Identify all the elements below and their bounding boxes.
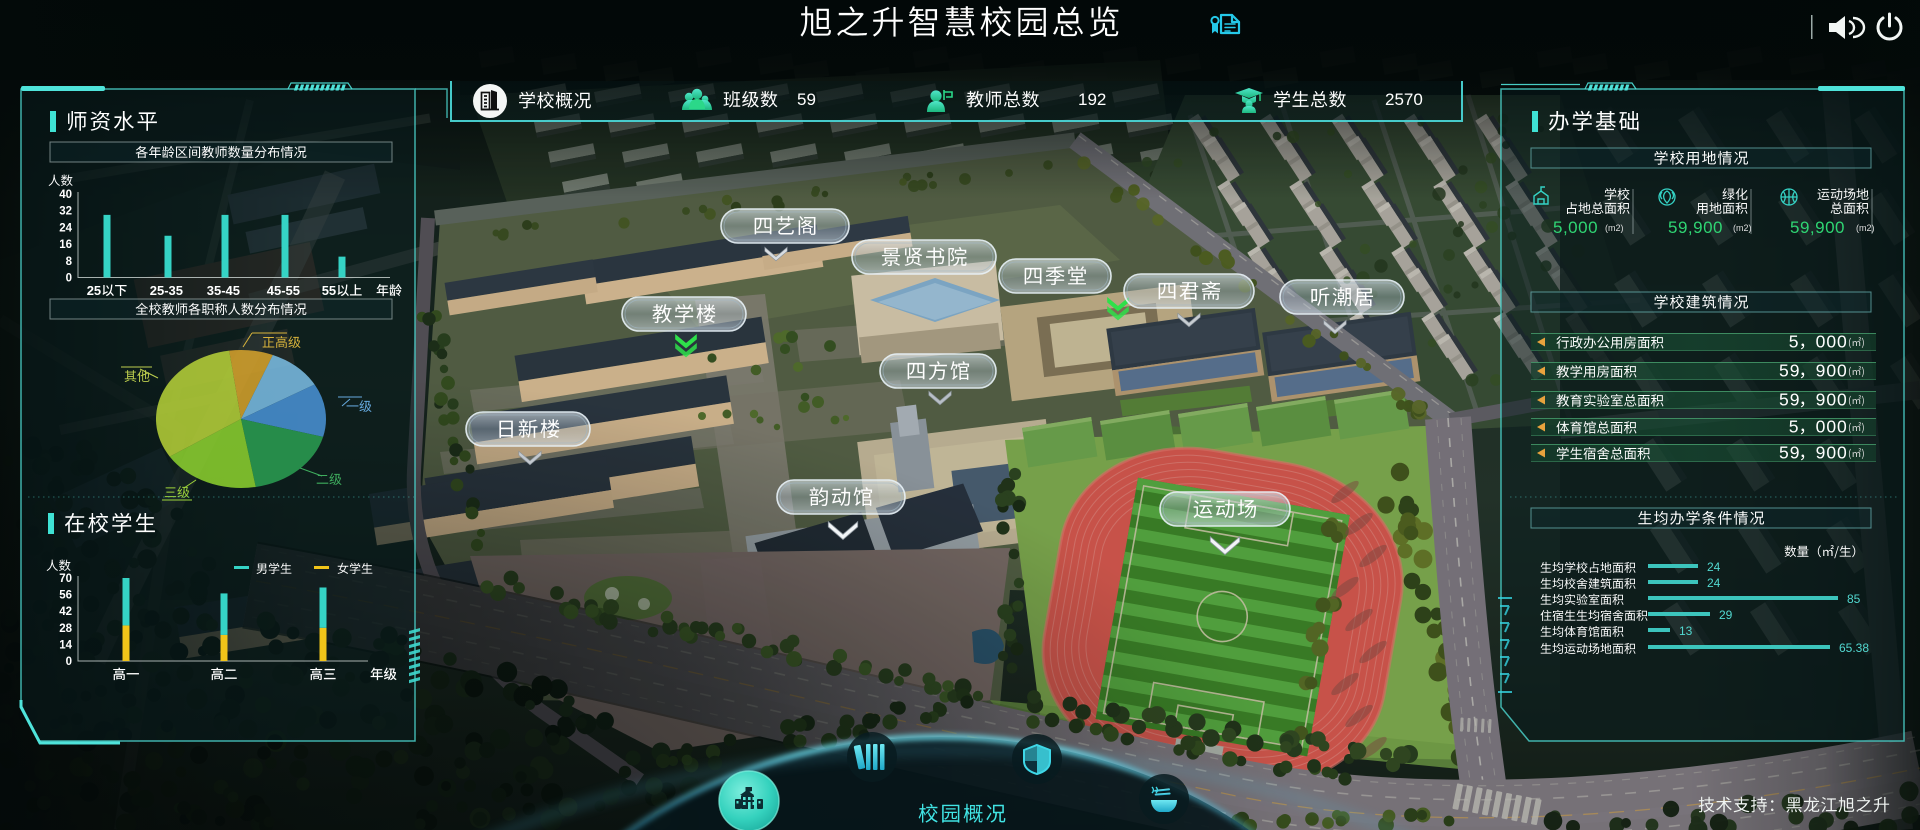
svg-text:900: 900	[1816, 443, 1848, 463]
svg-text:42: 42	[59, 606, 72, 618]
svg-text:000: 000	[1816, 417, 1848, 437]
svg-text:55: 55	[322, 283, 336, 298]
svg-text:59,900: 59,900	[1668, 218, 1723, 237]
svg-text:24: 24	[1707, 560, 1721, 574]
svg-text:5: 5	[1789, 332, 1800, 352]
svg-text:59: 59	[797, 90, 816, 109]
svg-text:32: 32	[59, 206, 72, 218]
svg-text:29: 29	[1719, 608, 1733, 622]
svg-text:900: 900	[1816, 390, 1848, 410]
svg-text:2570: 2570	[1385, 90, 1423, 109]
svg-text:56: 56	[59, 590, 72, 602]
svg-text:45-55: 45-55	[267, 283, 300, 298]
svg-text:13: 13	[1679, 624, 1693, 638]
svg-text:192: 192	[1078, 90, 1106, 109]
svg-text:(m2): (m2)	[1733, 223, 1752, 233]
svg-text:000: 000	[1816, 332, 1848, 352]
svg-text:85: 85	[1847, 592, 1861, 606]
svg-text:0: 0	[66, 273, 72, 285]
svg-text:5,000: 5,000	[1553, 218, 1598, 237]
svg-text:24: 24	[59, 222, 72, 234]
svg-text:8: 8	[66, 256, 73, 268]
svg-text:16: 16	[59, 239, 72, 251]
svg-text:25: 25	[87, 283, 101, 298]
svg-text:(m2): (m2)	[1605, 223, 1624, 233]
svg-text:59: 59	[1779, 361, 1800, 381]
svg-text:28: 28	[59, 623, 72, 635]
svg-text:59: 59	[1779, 443, 1800, 463]
svg-text:65.38: 65.38	[1839, 641, 1869, 655]
svg-text:40: 40	[59, 189, 72, 201]
svg-text:59,900: 59,900	[1790, 218, 1845, 237]
svg-text:14: 14	[59, 639, 72, 651]
svg-text:35-45: 35-45	[207, 283, 240, 298]
svg-text:900: 900	[1816, 361, 1848, 381]
svg-text:5: 5	[1789, 417, 1800, 437]
svg-text:25-35: 25-35	[150, 283, 183, 298]
svg-text:70: 70	[59, 573, 72, 585]
svg-text:24: 24	[1707, 576, 1721, 590]
svg-text:59: 59	[1779, 390, 1800, 410]
svg-text:0: 0	[66, 656, 72, 668]
